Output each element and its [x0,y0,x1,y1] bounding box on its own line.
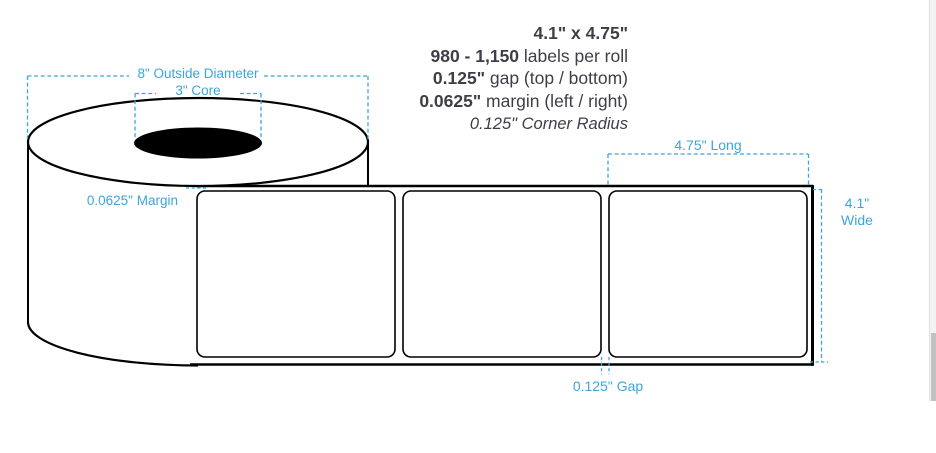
gap-label: 0.125" Gap [548,378,668,395]
spec-corner-radius-line: 0.125" Corner Radius [208,112,628,136]
width-label-word: Wide [822,212,892,229]
label-1 [197,191,395,357]
spec-gap-text: gap (top / bottom) [485,68,628,88]
core-label: 3" Core [143,83,253,98]
outside-diameter-label: 8" Outside Diameter [123,66,273,81]
spec-margin-line: 0.0625" margin (left / right) [208,90,628,113]
label-2 [403,191,601,357]
roll-bottom-curve [28,322,198,366]
scrollbar-track[interactable] [929,0,936,401]
spec-count-text: labels per roll [519,46,628,66]
length-label: 4.75" Long [638,137,778,154]
label-roll-diagram-page: 4.1" x 4.75" 980 - 1,150 labels per roll… [0,0,936,453]
scrollbar-thumb[interactable] [931,333,936,401]
spec-margin-text: margin (left / right) [481,91,628,111]
spec-gap-value: 0.125" [433,68,485,88]
width-label-value: 4.1" [822,195,892,212]
margin-label: 0.0625" Margin [62,193,178,208]
spec-size-line: 4.1" x 4.75" [208,22,628,45]
spec-count-value: 980 - 1,150 [431,46,520,66]
spec-corner-radius: 0.125" Corner Radius [470,115,628,133]
width-label: 4.1" Wide [822,195,892,229]
spec-size: 4.1" x 4.75" [534,23,628,43]
label-3 [609,191,807,357]
labels [197,191,807,357]
spec-count-line: 980 - 1,150 labels per roll [208,45,628,68]
spec-margin-value: 0.0625" [419,91,481,111]
